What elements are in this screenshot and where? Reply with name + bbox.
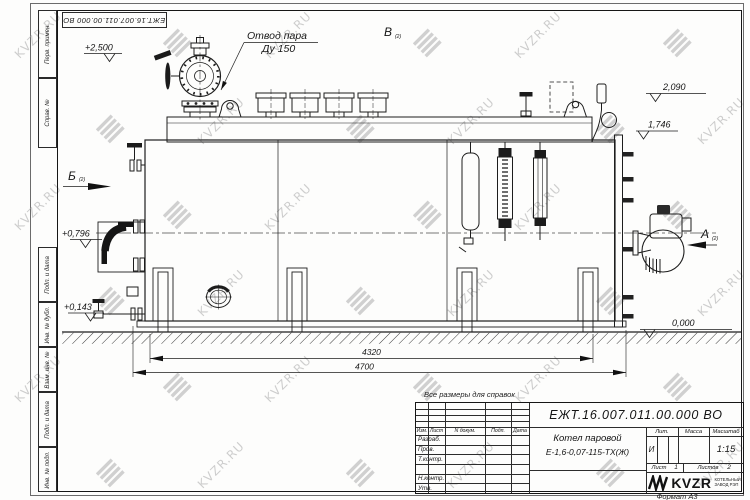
title-block-grid-line xyxy=(678,427,679,463)
rev-col-sign: Подп. xyxy=(485,427,511,435)
title-block-grid-line xyxy=(646,436,743,437)
side-stamp-label: Инв. № дубл. xyxy=(45,306,51,343)
side-stamp-label: Инв. № подл. xyxy=(45,451,51,488)
title-block-grid-line xyxy=(709,427,710,463)
title-block-grid-line xyxy=(529,403,530,493)
side-stamp-cell: Подп. и дата xyxy=(38,392,57,447)
designation-cell: ЕЖТ.16.007.011.00.000 ВО xyxy=(529,403,743,427)
title-block-grid-line xyxy=(683,463,684,472)
rotated-designation-text: ЕЖТ.16.007.011.00.000 ВО xyxy=(63,16,165,25)
sign-row-tkontr: Т.контр. xyxy=(418,454,448,464)
rev-col-doc: N докум. xyxy=(445,427,485,435)
format-label: Формат А3 xyxy=(612,492,742,500)
mass-header: Масса xyxy=(678,427,709,436)
title-block-grid-line xyxy=(416,483,529,484)
sheet-value: 1 xyxy=(669,463,683,472)
sign-row-prov: Пров. xyxy=(418,445,448,455)
title-block-grid-line xyxy=(657,436,658,463)
side-stamp-cell: Перв. примен. xyxy=(38,10,57,78)
title-block-grid-line xyxy=(646,472,743,473)
title-block-grid-line xyxy=(416,427,743,428)
title-block-grid-line xyxy=(646,463,743,464)
company-logo-text: KVZR xyxy=(671,475,711,491)
title-block-grid-line xyxy=(416,415,529,416)
sheets-value: 2 xyxy=(721,463,737,472)
scale-value: 1:15 xyxy=(709,436,743,463)
title-block-grid-line xyxy=(416,421,529,422)
side-stamp-label: Подп. и дата xyxy=(45,256,51,294)
title-block-grid-line xyxy=(416,445,529,446)
side-stamp-cell: Инв. № дубл. xyxy=(38,302,57,347)
side-stamp-cell: Подп. и дата xyxy=(38,247,57,302)
title-block-grid-line xyxy=(416,464,529,465)
title-block-grid-line xyxy=(428,403,429,493)
spring-icon xyxy=(648,475,668,491)
lit-value: И xyxy=(646,436,657,463)
rev-col-list: Лист xyxy=(428,427,445,435)
sheets-label: Листов xyxy=(695,463,721,472)
title-block-grid-line xyxy=(416,435,529,436)
title-block-grid-line xyxy=(416,474,529,475)
side-stamp-label: Взам. инв. № xyxy=(45,351,51,388)
company-tagline: КОТЕЛЬНЫЙ ЗАВОД РЭП xyxy=(714,478,740,488)
lit-header: Лит. xyxy=(646,427,678,436)
side-stamp-cell: Инв. № подл. xyxy=(38,447,57,492)
title-block-grid-line xyxy=(529,470,646,471)
title-block-grid-line xyxy=(416,409,529,410)
sheet-label: Лист xyxy=(649,463,669,472)
company-cell: KVZR КОТЕЛЬНЫЙ ЗАВОД РЭП xyxy=(646,472,743,493)
title-block-grid-line xyxy=(416,454,529,455)
side-stamp-label: Перв. примен. xyxy=(45,24,51,64)
product-name-line1: Котел паровой xyxy=(529,430,646,446)
rotated-designation-box: ЕЖТ.16.007.011.00.000 ВО xyxy=(62,12,167,28)
reference-note: Все размеры для справок xyxy=(424,390,515,399)
side-stamp-cell: Взам. инв. № xyxy=(38,347,57,392)
sign-row-razrab: Разраб. xyxy=(418,435,448,445)
title-block-grid-line xyxy=(485,403,486,493)
rev-col-izm: Изм. xyxy=(416,427,428,435)
drawing-sheet: KVZR.RUKVZR.RUKVZR.RUKVZR.RUKVZR.RUKVZR.… xyxy=(0,0,750,500)
side-stamp-cell: Справ. № xyxy=(38,78,57,148)
title-block: ЕЖТ.16.007.011.00.000 ВО Изм. Лист N док… xyxy=(415,402,744,494)
rev-col-date: Дата xyxy=(511,427,529,435)
sign-row-utv: Утв. xyxy=(418,483,448,493)
scale-header: Масштаб xyxy=(709,427,743,436)
title-block-grid-line xyxy=(668,436,669,463)
title-block-grid-line xyxy=(445,403,446,493)
sign-row-nkontr: Н.контр. xyxy=(418,474,448,484)
side-stamp-label: Подп. и дата xyxy=(45,401,51,439)
product-name-line2: Е-1,6-0,07-115-ТХ(Ж) xyxy=(529,445,646,459)
side-stamp-label: Справ. № xyxy=(45,99,51,126)
title-block-grid-line xyxy=(511,403,512,493)
